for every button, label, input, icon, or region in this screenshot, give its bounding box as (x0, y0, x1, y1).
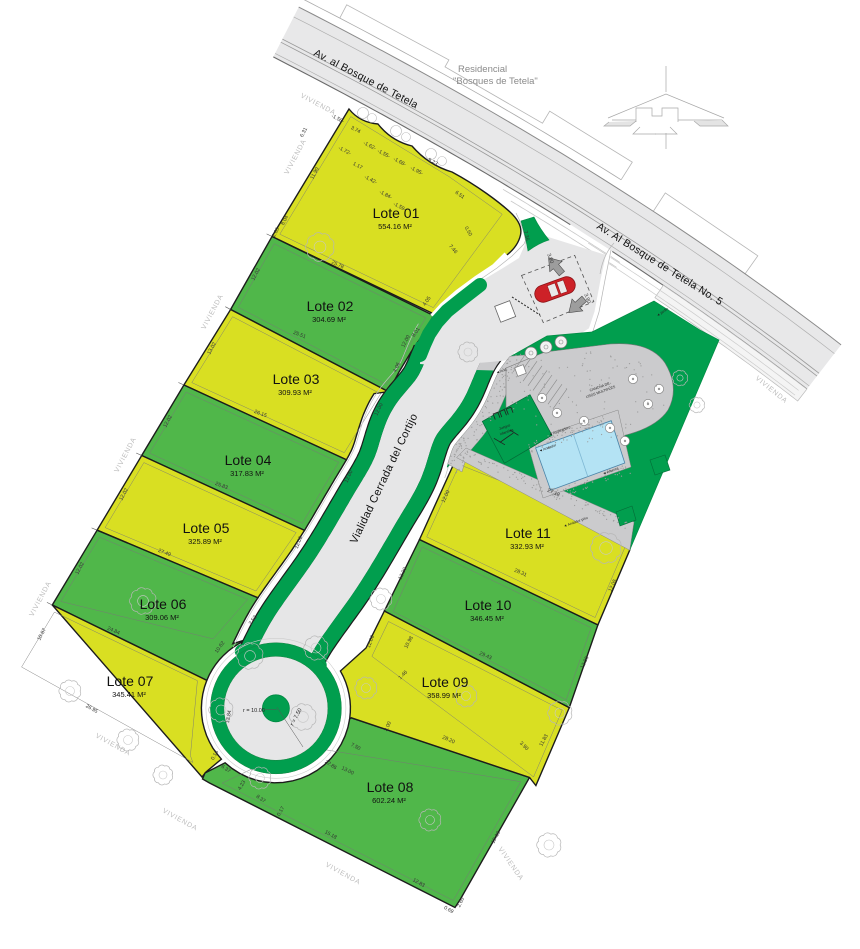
svg-text:332.93 M²: 332.93 M² (510, 542, 544, 551)
svg-text:Lote 07: Lote 07 (107, 673, 154, 689)
svg-text:346.45 M²: 346.45 M² (470, 614, 504, 623)
svg-text:r = 10.00: r = 10.00 (243, 708, 265, 714)
svg-text:309.06 M²: 309.06 M² (145, 613, 179, 622)
svg-text:Lote 06: Lote 06 (140, 596, 187, 612)
svg-text:"Bosques de Tetela": "Bosques de Tetela" (453, 76, 538, 87)
svg-text:325.89 M²: 325.89 M² (188, 537, 222, 546)
svg-text:Lote 04: Lote 04 (225, 452, 272, 468)
svg-text:554.16 M²: 554.16 M² (378, 222, 412, 231)
svg-text:Lote 11: Lote 11 (505, 525, 551, 541)
svg-text:Residencial: Residencial (458, 64, 507, 75)
svg-text:Lote 05: Lote 05 (183, 520, 230, 536)
svg-text:Lote 08: Lote 08 (367, 779, 414, 795)
svg-text:345.41 M²: 345.41 M² (112, 690, 146, 699)
svg-text:Lote 10: Lote 10 (465, 597, 512, 613)
svg-text:317.83 M²: 317.83 M² (230, 469, 264, 478)
svg-text:309.93 M²: 309.93 M² (278, 388, 312, 397)
svg-text:Lote 03: Lote 03 (273, 371, 320, 387)
svg-text:Lote 09: Lote 09 (422, 674, 469, 690)
svg-text:358.99 M²: 358.99 M² (427, 691, 461, 700)
svg-text:304.69 M²: 304.69 M² (312, 315, 346, 324)
svg-text:Lote 02: Lote 02 (307, 298, 354, 314)
svg-text:602.24 M²: 602.24 M² (372, 796, 406, 805)
